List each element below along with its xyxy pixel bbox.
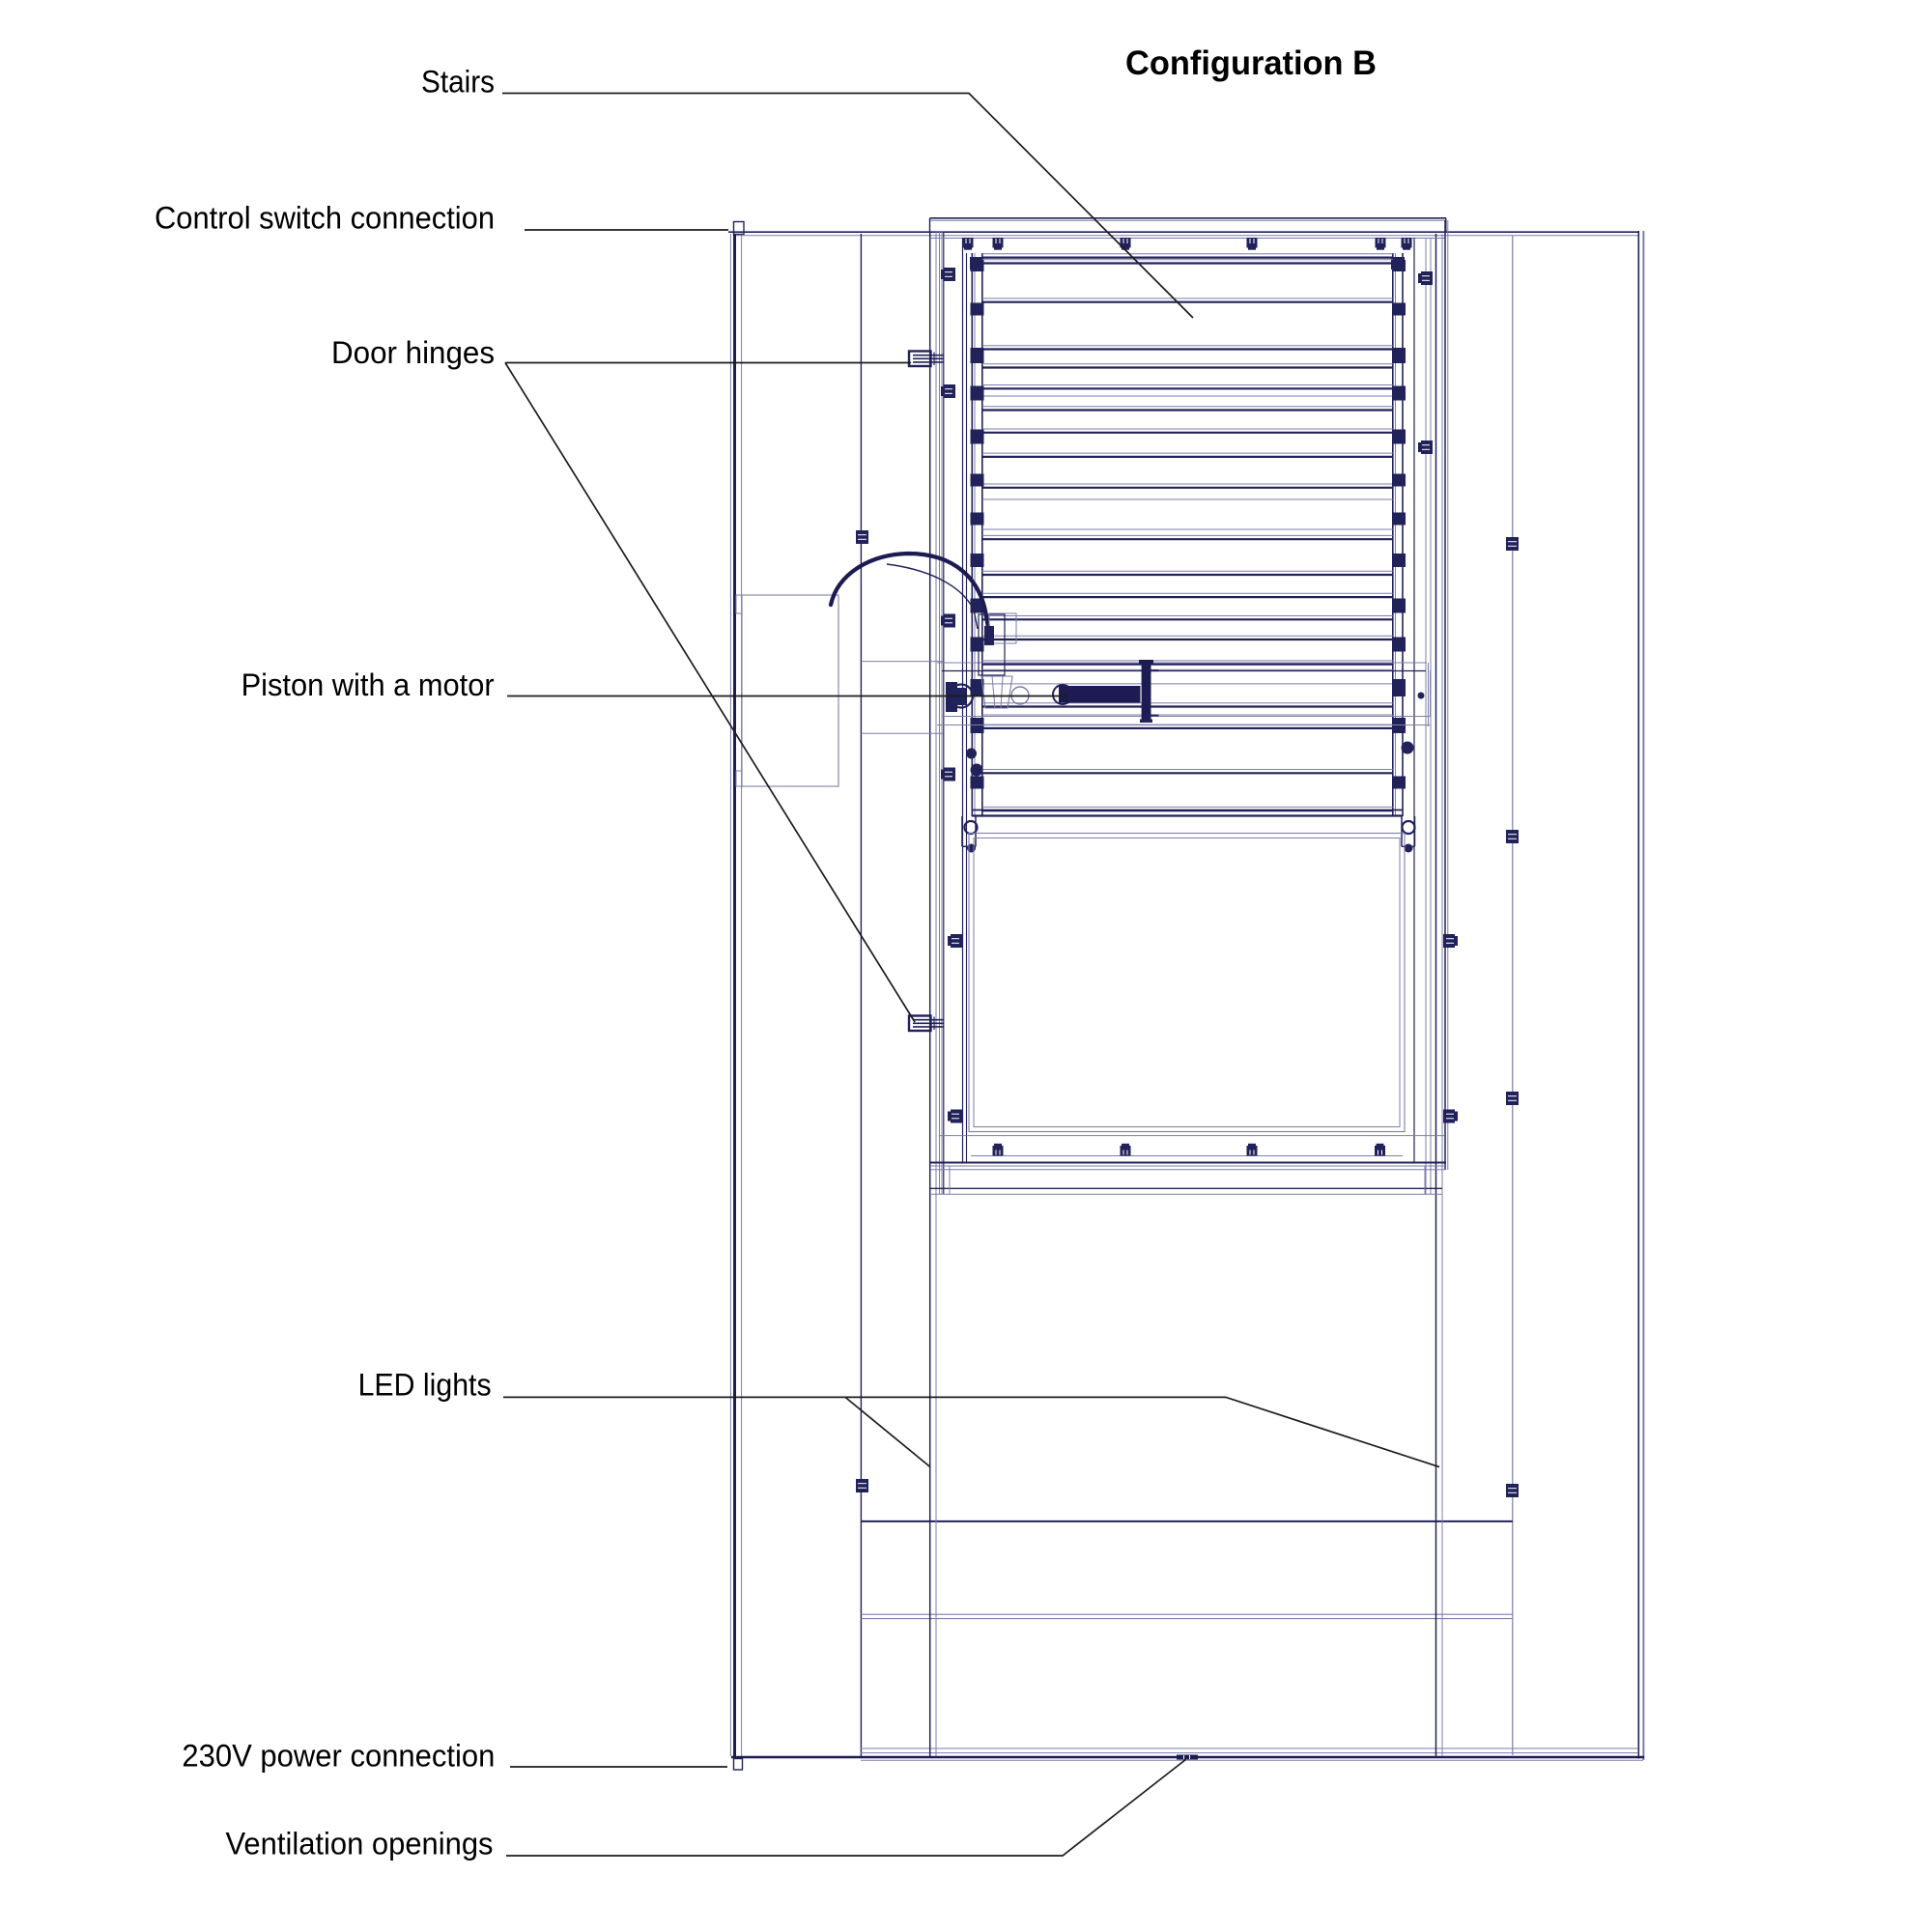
svg-text:Stairs: Stairs — [421, 65, 495, 99]
svg-text:Ventilation openings: Ventilation openings — [226, 1826, 494, 1861]
svg-text:Piston with a motor: Piston with a motor — [241, 668, 495, 702]
svg-text:LED lights: LED lights — [358, 1368, 492, 1403]
svg-text:230V power connection: 230V power connection — [182, 1738, 495, 1773]
svg-text:Control switch connection: Control switch connection — [155, 201, 495, 236]
svg-text:Configuration B: Configuration B — [1125, 44, 1377, 82]
svg-text:Door hinges: Door hinges — [331, 335, 495, 370]
